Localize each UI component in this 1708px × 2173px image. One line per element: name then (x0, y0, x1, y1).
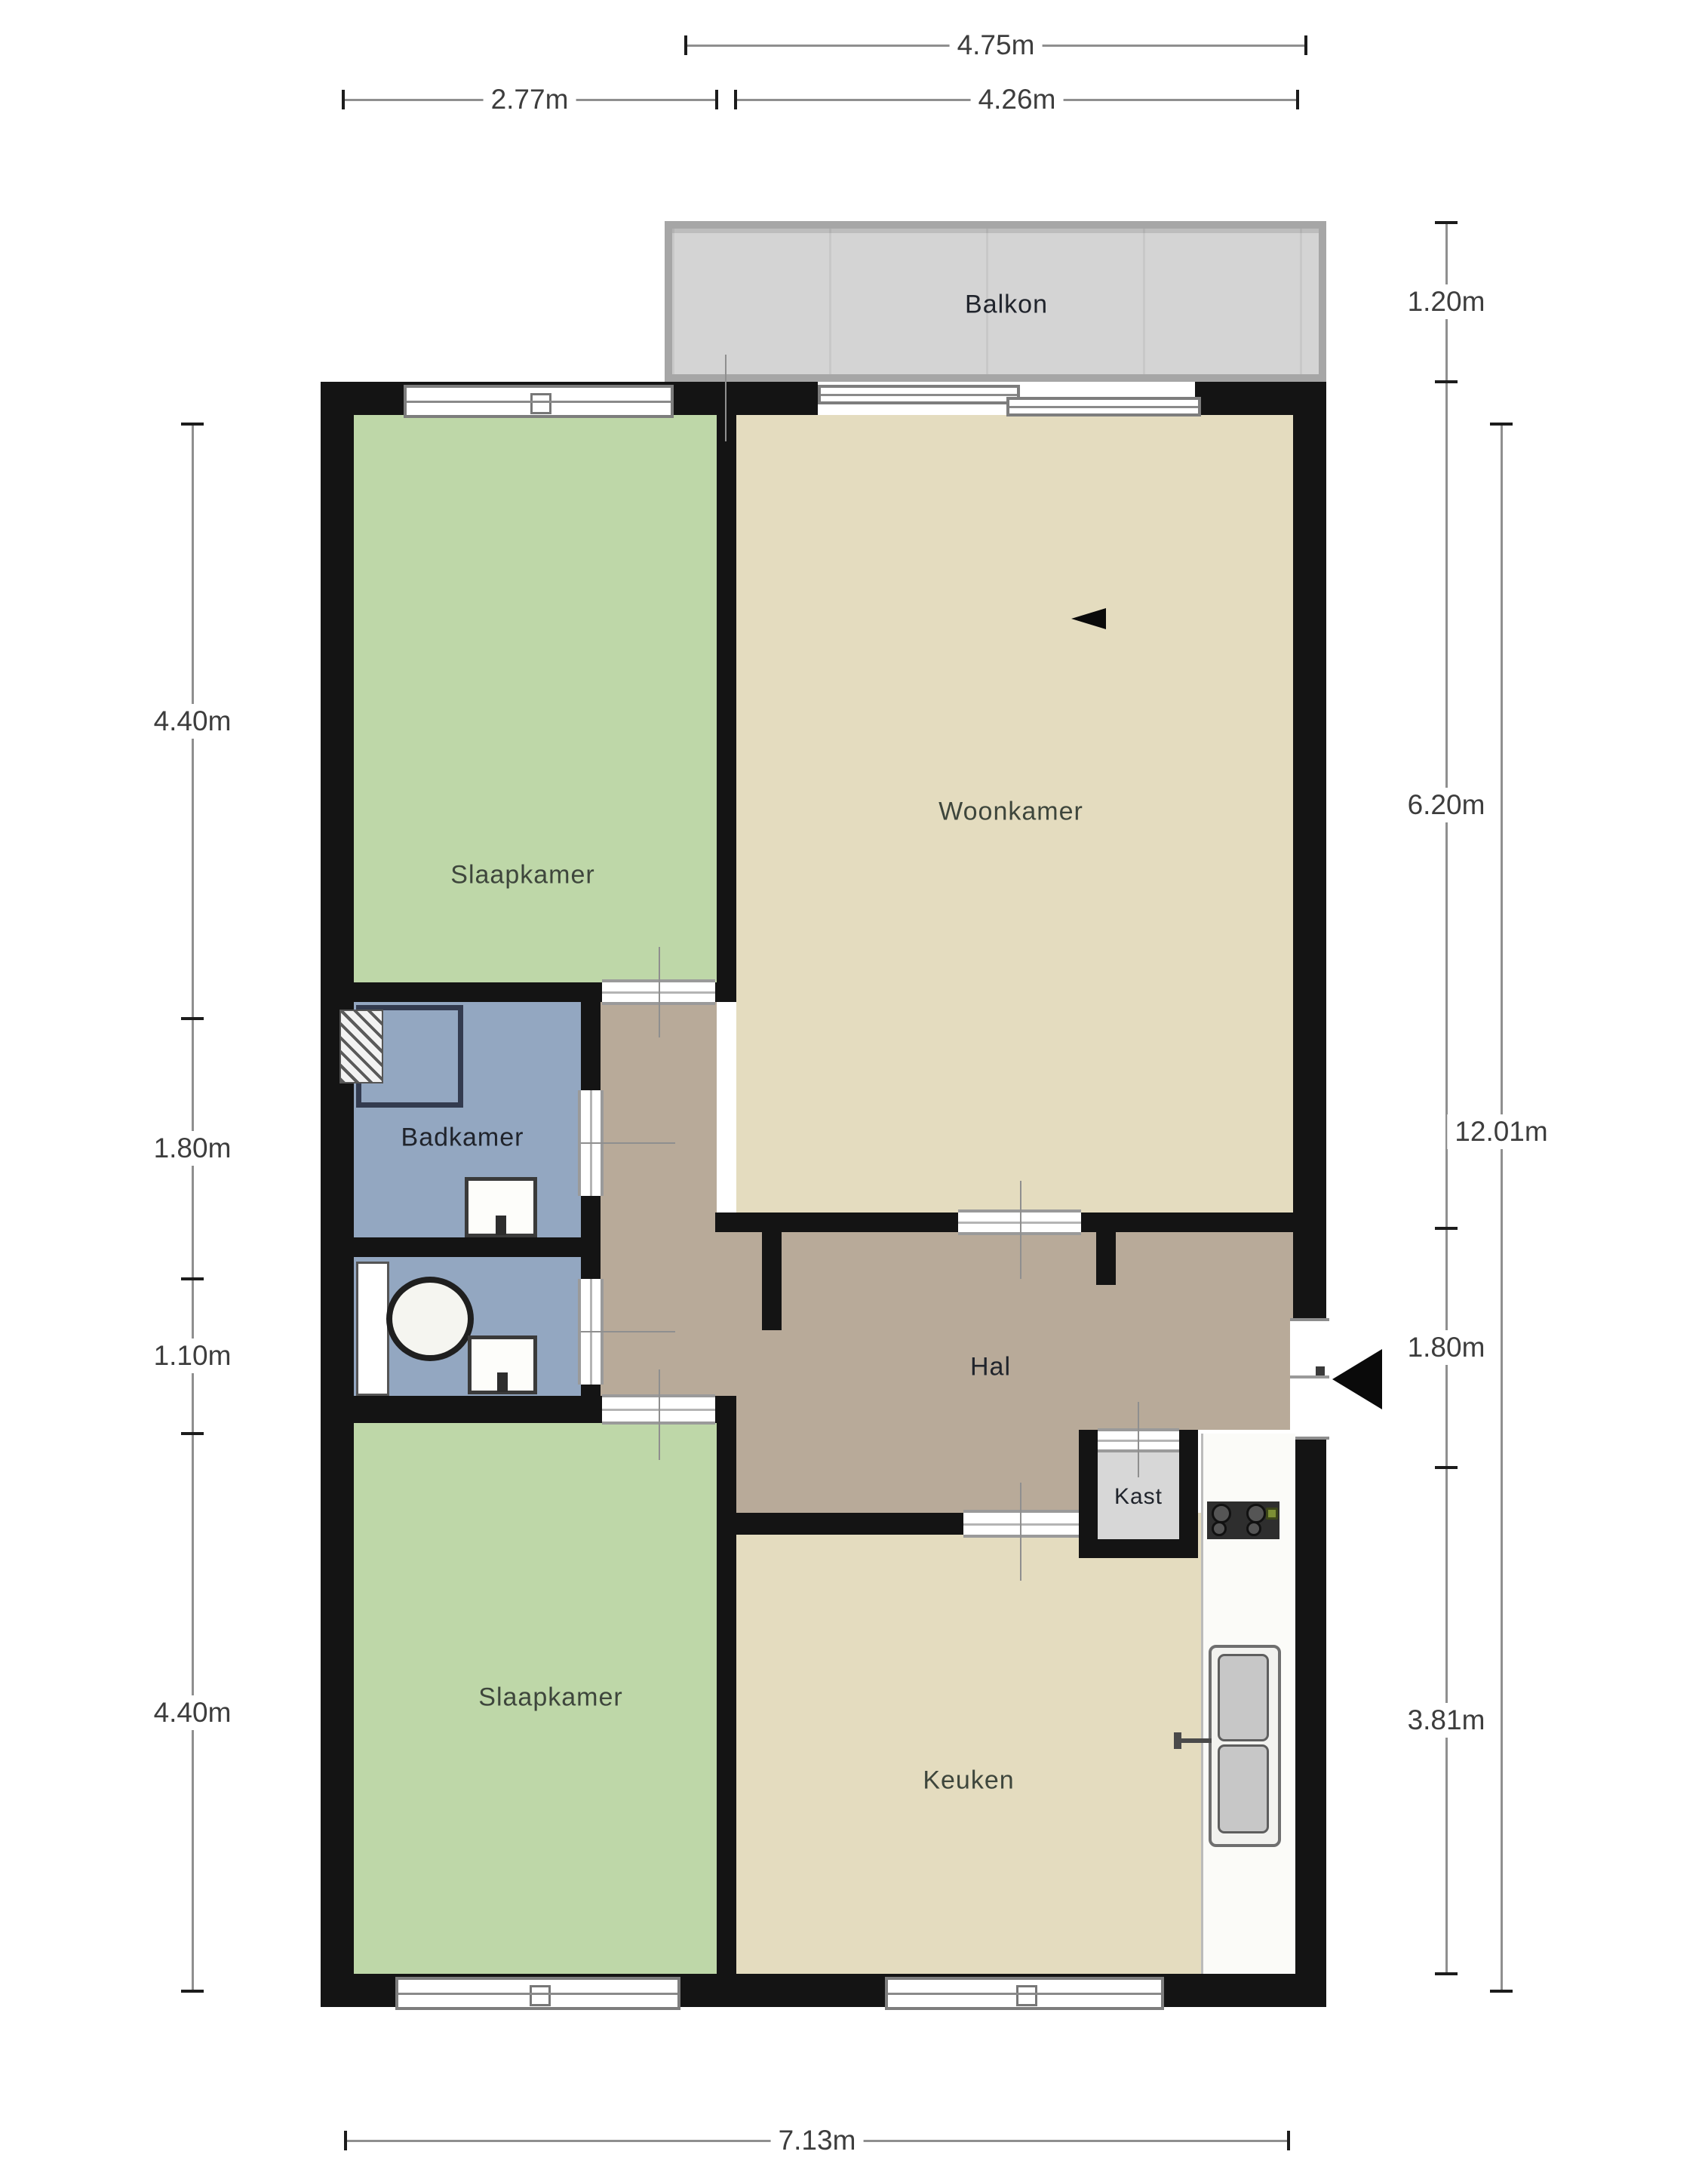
wall-left (321, 382, 354, 2007)
room-bedroom-top (354, 415, 717, 1002)
guide-living-door (1020, 1181, 1021, 1279)
floorplan-canvas: Balkon Slaapkamer Woonkamer Badkamer Hal… (0, 0, 1708, 2173)
guide-wc-door (581, 1331, 675, 1332)
dimension-label: 1.20m (1400, 284, 1493, 319)
dim-tick (1490, 1990, 1513, 1993)
dim-tick (181, 423, 204, 426)
window-bedroom-bottom (395, 1977, 680, 2010)
guide-topdim-split (725, 355, 727, 441)
wall-kast-bottom (1079, 1539, 1198, 1558)
dim-tick (181, 1277, 204, 1280)
window-keuken (885, 1977, 1164, 2010)
dimension-label: 6.20m (1400, 788, 1493, 822)
dimension-label: 2.77m (484, 82, 576, 117)
window-bedroom-top (404, 385, 674, 418)
faucet-icon (496, 1216, 506, 1235)
dimension-label: 4.75m (950, 28, 1043, 63)
wall-bed2-kitchen (717, 1396, 736, 1974)
label-bedroom-bottom: Slaapkamer (478, 1683, 622, 1713)
dim-tick (344, 2131, 347, 2150)
dimension-label: 4.26m (971, 82, 1064, 117)
dim-tick (181, 1990, 204, 1993)
dim-tick (1296, 90, 1299, 109)
guide-kitchen-door (1020, 1483, 1021, 1581)
toilet-icon (386, 1277, 474, 1361)
bath-sink-icon (465, 1177, 537, 1237)
radiator-icon (339, 1010, 383, 1083)
dim-tick (181, 1017, 204, 1020)
wall-stub-left (762, 1232, 782, 1330)
dimension-label: 7.13m (771, 2123, 864, 2158)
wall-bed1-living (717, 415, 736, 1002)
wc-sink-icon (468, 1335, 537, 1394)
label-balkon: Balkon (965, 290, 1048, 320)
wall-bath-bottom (354, 1237, 601, 1257)
wall-hall-kitchen (736, 1513, 963, 1535)
guide-bath-door (581, 1142, 675, 1144)
sink-basin (1218, 1654, 1269, 1741)
dimension-label: 4.40m (146, 1695, 239, 1730)
sliding-panel-left (818, 385, 1020, 404)
label-hal: Hal (970, 1353, 1011, 1382)
dim-tick (1435, 380, 1458, 383)
entry-door-mid (1290, 1375, 1329, 1378)
entry-door (1290, 1318, 1329, 1440)
sink-basin (1218, 1744, 1269, 1833)
entry-arrow-icon (1332, 1349, 1382, 1409)
dim-tick (342, 90, 345, 109)
faucet-icon (497, 1372, 508, 1392)
kitchen-sink-icon (1209, 1645, 1281, 1847)
window-handle-icon (530, 1985, 551, 2006)
stove-icon (1207, 1501, 1279, 1539)
dimension-label: 1.10m (146, 1339, 239, 1373)
dimension-label: 1.80m (1400, 1330, 1493, 1365)
entry-door-handle-icon (1316, 1366, 1325, 1375)
guide-bed1-door (659, 947, 660, 1037)
balcony-sliding-door (818, 382, 1195, 415)
room-hal-lower (717, 1423, 1079, 1513)
label-bedroom-top: Slaapkamer (450, 861, 594, 890)
dim-tick (1435, 1972, 1458, 1975)
wall-right (1293, 382, 1326, 2007)
dimension-label: 12.01m (1447, 1114, 1555, 1149)
sliding-panel-right (1006, 397, 1201, 416)
label-keuken: Keuken (923, 1766, 1014, 1796)
dim-tick (1435, 1466, 1458, 1469)
dim-tick (1435, 1227, 1458, 1230)
dimension-line (1501, 424, 1503, 1991)
label-kast: Kast (1114, 1484, 1163, 1510)
wc-door-leaf (356, 1262, 389, 1396)
dim-tick (684, 35, 687, 55)
kitchen-faucet-icon (1177, 1738, 1212, 1743)
dimension-label: 3.81m (1400, 1703, 1493, 1738)
dimension-label: 1.80m (146, 1131, 239, 1166)
window-handle-icon (1016, 1985, 1037, 2006)
dim-tick (1490, 423, 1513, 426)
guide-bed2-door (659, 1369, 660, 1460)
label-woonkamer: Woonkamer (938, 798, 1083, 827)
dimension-line (192, 424, 194, 1991)
dim-tick (734, 90, 737, 109)
kitchen-faucet-icon (1174, 1732, 1181, 1749)
window-handle-icon (530, 393, 551, 414)
dim-tick (715, 90, 718, 109)
wall-stub-right (1096, 1232, 1116, 1285)
dimension-label: 4.40m (146, 704, 239, 739)
dim-tick (1287, 2131, 1290, 2150)
guide-kast-door (1138, 1402, 1139, 1477)
label-badkamer: Badkamer (401, 1123, 524, 1153)
dim-tick (1304, 35, 1307, 55)
dim-tick (1435, 221, 1458, 224)
balcony-door-arrow-icon (1071, 608, 1106, 629)
dim-tick (181, 1432, 204, 1435)
